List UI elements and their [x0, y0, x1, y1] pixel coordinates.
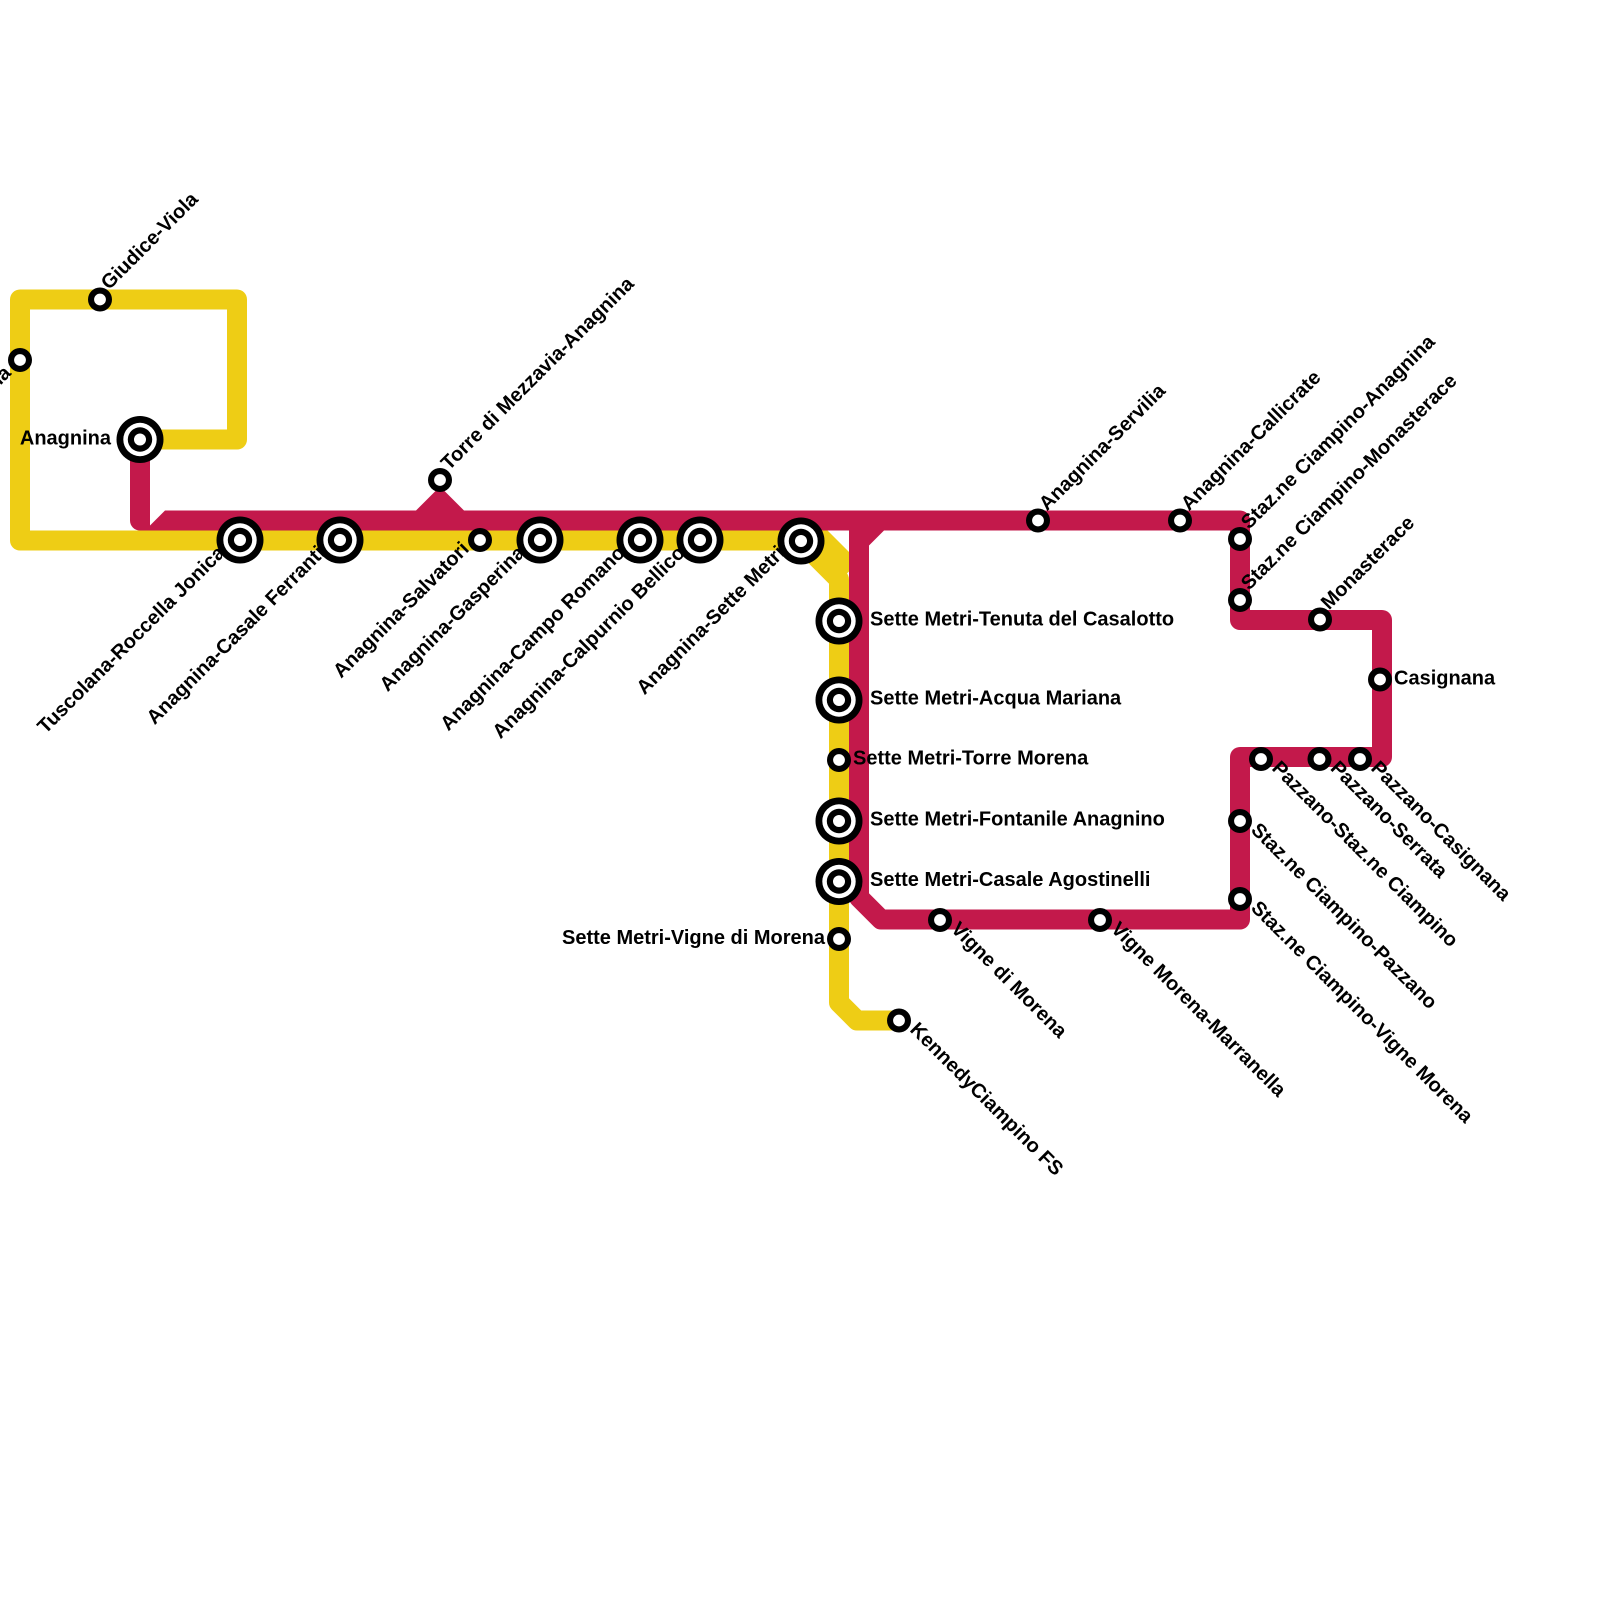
svg-text:Anagnina: Anagnina	[20, 428, 112, 450]
svg-text:Sette Metri-Fontanile Anagnino: Sette Metri-Fontanile Anagnino	[870, 809, 1165, 831]
svg-text:Sette Metri-Vigne di Morena: Sette Metri-Vigne di Morena	[562, 927, 826, 949]
svg-text:Sette Metri-Tenuta del Casalot: Sette Metri-Tenuta del Casalotto	[870, 609, 1174, 631]
svg-text:Casignana: Casignana	[1394, 668, 1496, 690]
svg-text:Sette Metri-Acqua Mariana: Sette Metri-Acqua Mariana	[870, 688, 1122, 710]
svg-text:Sette Metri-Torre Morena: Sette Metri-Torre Morena	[853, 748, 1089, 770]
svg-text:Sette Metri-Casale Agostinelli: Sette Metri-Casale Agostinelli	[870, 869, 1150, 891]
